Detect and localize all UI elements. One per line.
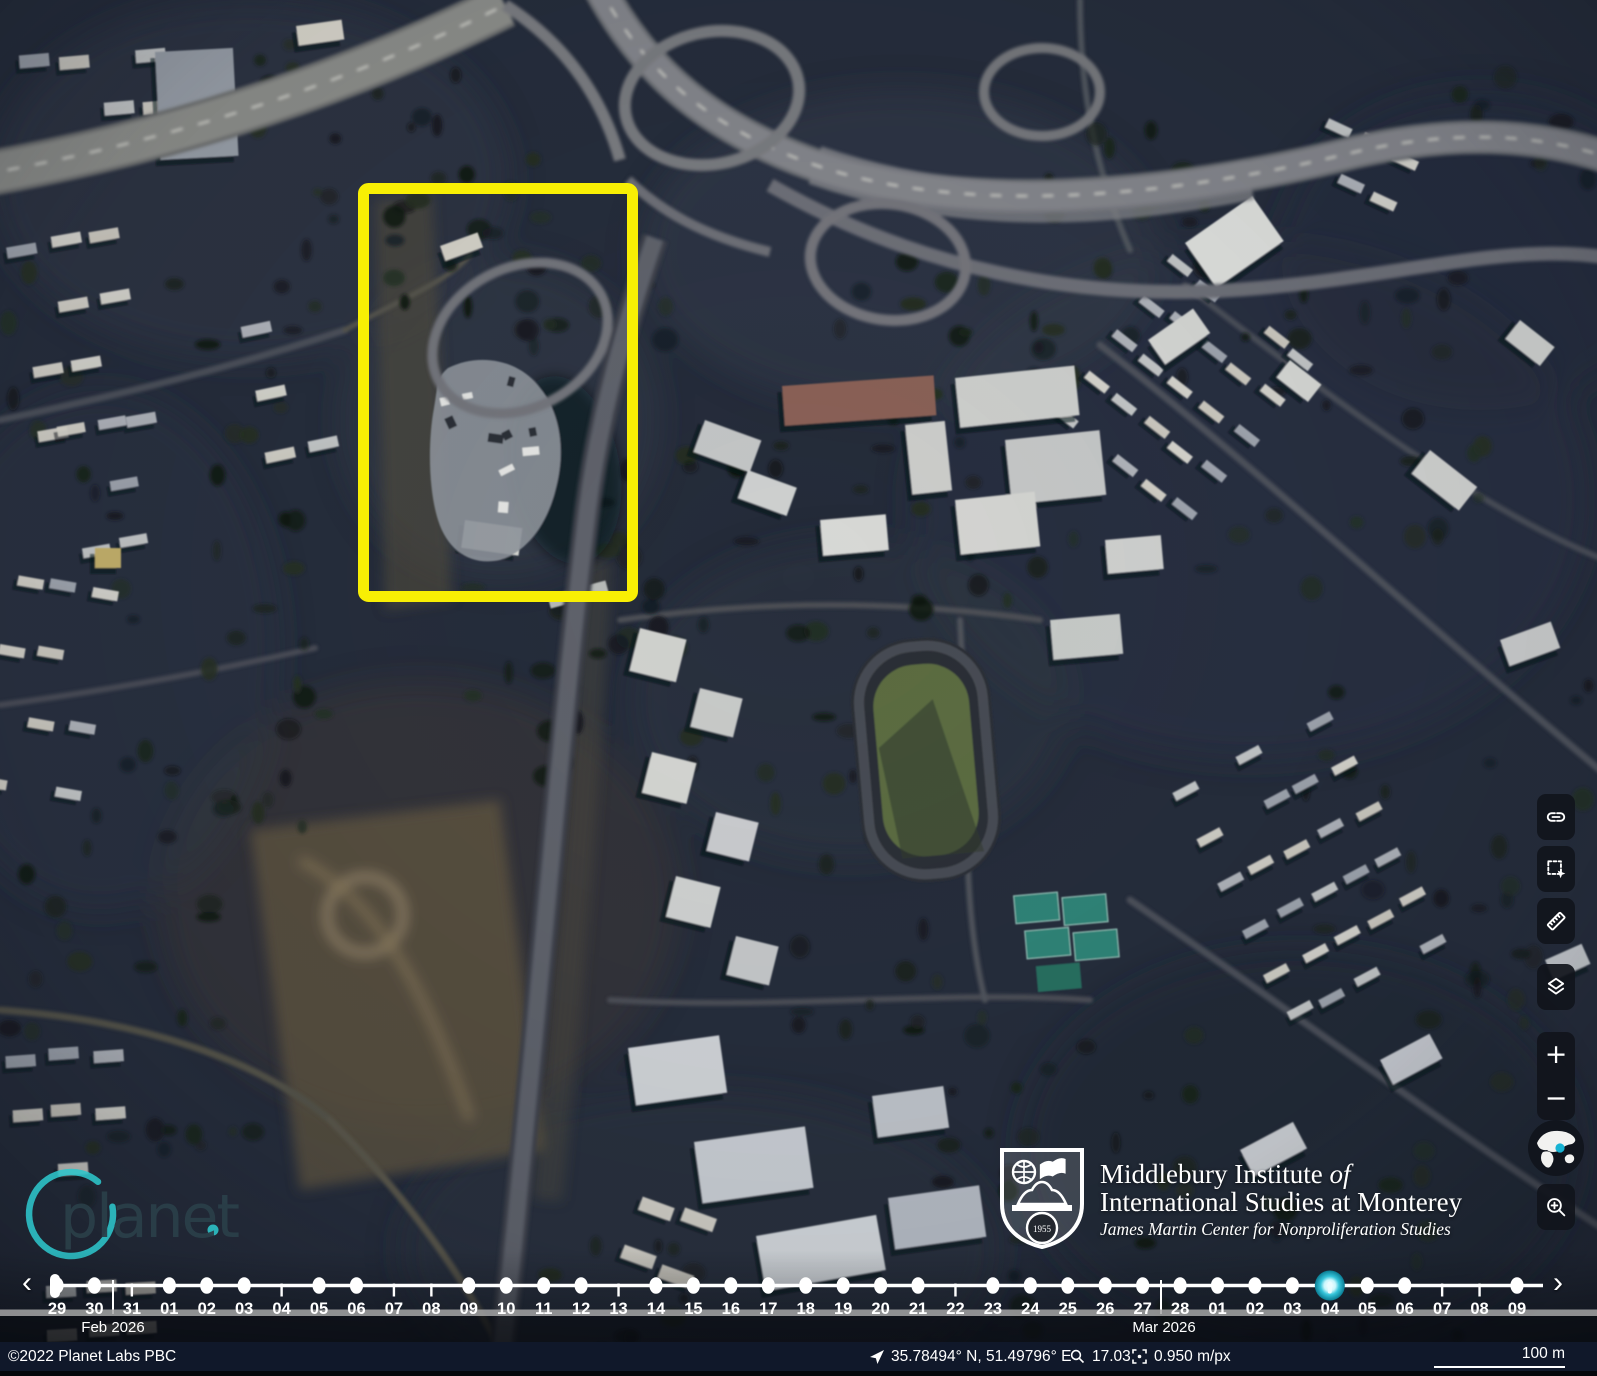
timeline-day-dot[interactable] <box>163 1277 176 1294</box>
magnifier-icon <box>1070 1349 1085 1364</box>
timeline-day-dot[interactable] <box>874 1277 887 1294</box>
scale-bar <box>1434 1366 1565 1368</box>
satellite-map[interactable] <box>0 0 1597 1376</box>
timeline-day-dot[interactable] <box>911 1277 924 1294</box>
timeline-day-dot[interactable] <box>462 1277 475 1294</box>
timeline-day-dot[interactable] <box>649 1277 662 1294</box>
timeline-day-dot[interactable] <box>312 1277 325 1294</box>
layers-button[interactable] <box>1537 964 1575 1010</box>
timeline-day-dot[interactable] <box>1248 1277 1261 1294</box>
measure-button[interactable] <box>1537 898 1575 944</box>
timeline-day-dot[interactable] <box>1024 1277 1037 1294</box>
layers-icon <box>1545 976 1567 998</box>
haze-overlay <box>0 0 1597 1376</box>
timeline-month-label: Mar 2026 <box>1132 1319 1195 1336</box>
timeline: 2930310102030405060708091011121314151617… <box>0 1250 1597 1342</box>
timeline-day-dot[interactable] <box>1361 1277 1374 1294</box>
timeline-day-dot[interactable] <box>350 1277 363 1294</box>
pixel-frame-icon <box>1132 1349 1147 1364</box>
timeline-month-strip: Feb 2026Mar 2026 <box>0 1316 1597 1342</box>
timeline-day-dot[interactable] <box>762 1277 775 1294</box>
timeline-day-dot[interactable] <box>1173 1277 1186 1294</box>
zoom-window-button[interactable] <box>1537 1184 1575 1230</box>
timeline-day-dot[interactable] <box>1398 1277 1411 1294</box>
select-area-button[interactable] <box>1537 846 1575 892</box>
globe-locator-button[interactable] <box>1527 1119 1585 1177</box>
status-bar: ©2022 Planet Labs PBC 35.78494° N, 51.49… <box>0 1342 1597 1376</box>
copyright-text: ©2022 Planet Labs PBC <box>8 1342 176 1371</box>
coordinates-readout: 35.78494° N, 51.49796° E <box>870 1342 1071 1371</box>
timeline-day-dot[interactable] <box>1136 1277 1149 1294</box>
ruler-icon <box>1545 910 1567 932</box>
timeline-day-dot[interactable] <box>200 1277 213 1294</box>
timeline-day-dot[interactable] <box>238 1277 251 1294</box>
timeline-day-dot[interactable] <box>537 1277 550 1294</box>
resolution-readout: 0.950 m/px <box>1132 1342 1231 1371</box>
timeline-day-dot[interactable] <box>1211 1277 1224 1294</box>
globe-icon <box>1527 1119 1585 1177</box>
timeline-day-dot[interactable] <box>1510 1277 1523 1294</box>
timeline-day-dot[interactable] <box>724 1277 737 1294</box>
magnifier-plus-icon <box>1545 1196 1567 1218</box>
scale-label: 100 m <box>1522 1345 1565 1363</box>
timeline-prev-button[interactable]: ‹ <box>22 1268 32 1298</box>
select-area-icon <box>1545 858 1567 880</box>
share-link-button[interactable] <box>1537 794 1575 840</box>
timeline-day-dot[interactable] <box>799 1277 812 1294</box>
timeline-day-dot[interactable] <box>1286 1277 1299 1294</box>
timeline-day-dot[interactable] <box>687 1277 700 1294</box>
timeline-month-label: Feb 2026 <box>81 1319 144 1336</box>
timeline-day-dot[interactable] <box>986 1277 999 1294</box>
timeline-day-dot[interactable] <box>88 1277 101 1294</box>
timeline-day-dot[interactable] <box>1099 1277 1112 1294</box>
timeline-selected-day-marker <box>1328 1282 1332 1294</box>
timeline-day-dot[interactable] <box>500 1277 513 1294</box>
timeline-next-button[interactable]: › <box>1553 1268 1563 1298</box>
timeline-day-dot[interactable] <box>1061 1277 1074 1294</box>
zoom-in-button[interactable]: + <box>1537 1032 1575 1076</box>
satellite-viewer: planet 1955 Middlebury Institute of Inte… <box>0 0 1597 1376</box>
zoom-level-readout: 17.03 <box>1070 1342 1131 1371</box>
timeline-day-dot[interactable] <box>575 1277 588 1294</box>
timeline-day-dot[interactable] <box>50 1277 63 1294</box>
zoom-control: + − <box>1537 1032 1575 1120</box>
link-icon <box>1545 806 1567 828</box>
zoom-out-button[interactable]: − <box>1537 1076 1575 1120</box>
timeline-day-dot[interactable] <box>837 1277 850 1294</box>
location-arrow-icon <box>870 1350 884 1364</box>
